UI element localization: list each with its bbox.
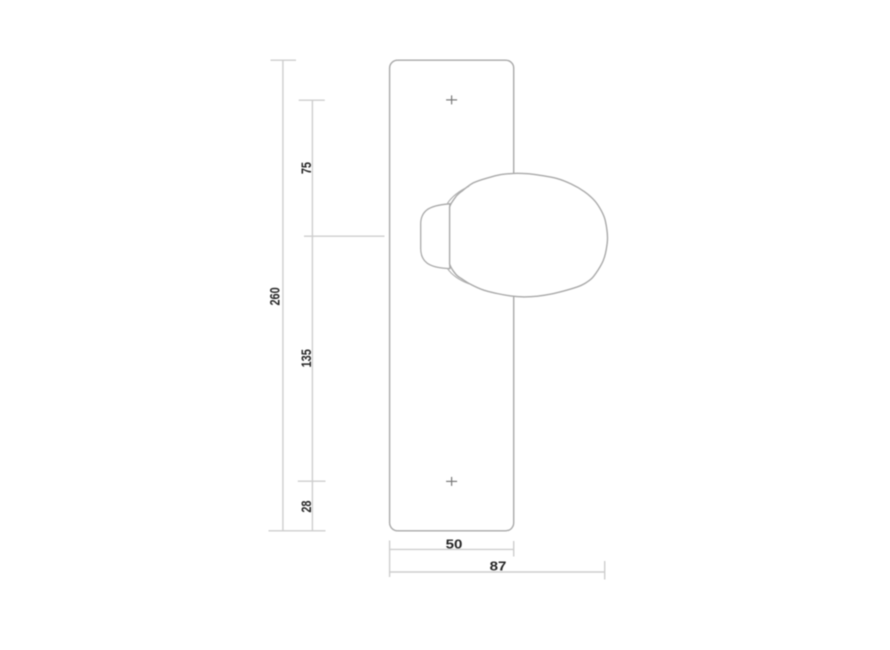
svg-text:260: 260 [267,287,283,305]
svg-text:87: 87 [490,559,507,574]
svg-text:75: 75 [299,162,315,174]
svg-text:135: 135 [299,349,315,367]
svg-text:50: 50 [446,537,463,552]
svg-text:28: 28 [298,501,314,513]
